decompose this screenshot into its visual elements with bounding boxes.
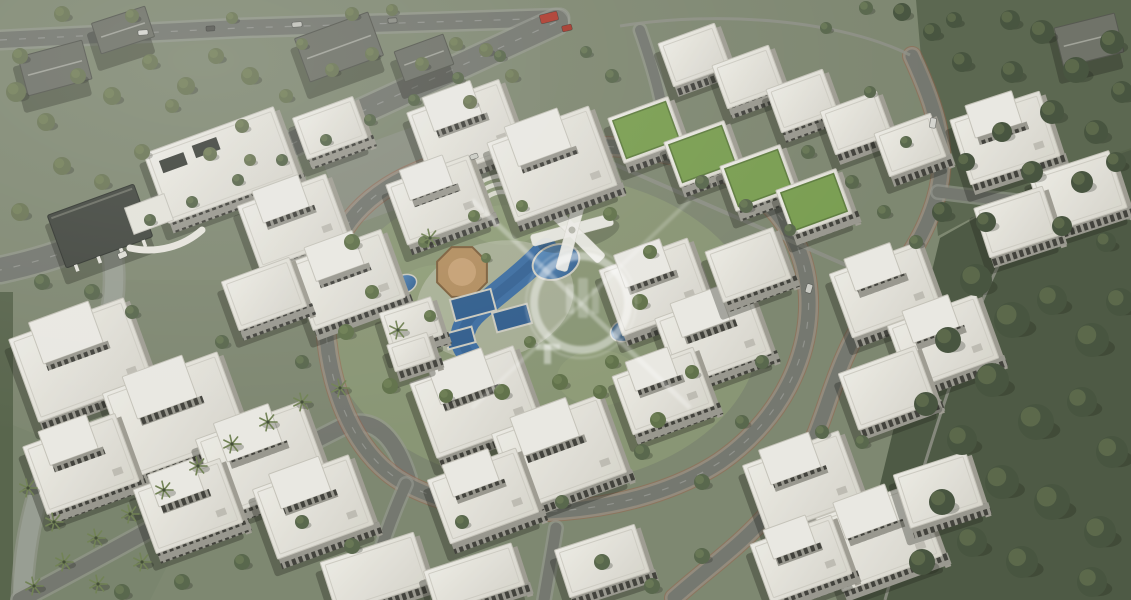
aerial-render-viewport (0, 0, 1131, 600)
desaturation-overlay (0, 0, 1131, 600)
watermark-mark (544, 344, 551, 364)
watermark-mark (578, 278, 588, 318)
fx-layer (0, 0, 1131, 600)
masterplan-render (0, 0, 1131, 600)
watermark-mark (566, 284, 574, 314)
watermark-mark (592, 288, 599, 314)
